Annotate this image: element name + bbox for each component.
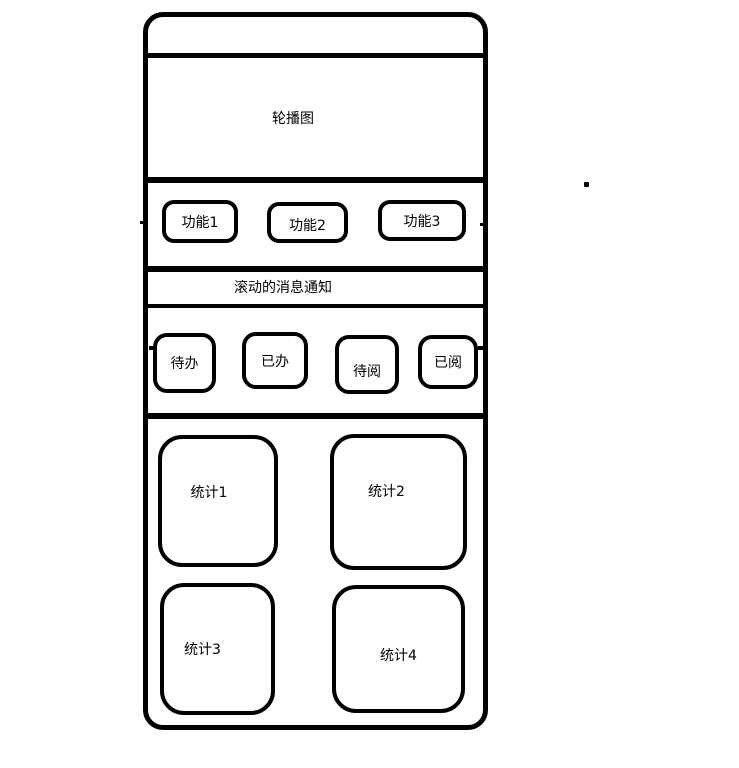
- edge-tick-left-tasks: [149, 346, 155, 350]
- function-button-2[interactable]: 功能2: [267, 202, 348, 243]
- task-button-done-label: 已办: [261, 351, 289, 371]
- function-button-1[interactable]: 功能1: [162, 200, 238, 243]
- stat-box-1[interactable]: 统计1: [158, 435, 278, 567]
- task-button-todo-label: 待办: [171, 353, 199, 373]
- scrolling-notice-label: 滚动的消息通知: [234, 277, 332, 297]
- tasks-bottom-line: [147, 413, 485, 419]
- stat-box-2-label: 统计2: [368, 481, 405, 501]
- stray-dot: [584, 182, 589, 187]
- carousel-placeholder[interactable]: 轮播图: [147, 58, 485, 177]
- function-button-3-label: 功能3: [404, 211, 441, 231]
- task-button-toread-label: 待阅: [353, 361, 381, 381]
- stat-box-4[interactable]: 统计4: [332, 585, 465, 713]
- task-button-read[interactable]: 已阅: [418, 335, 478, 389]
- stat-box-3-label: 统计3: [184, 639, 221, 659]
- wireframe-canvas: 轮播图 功能1 功能2 功能3 滚动的消息通知 待办 已办 待阅 已阅 统计1 …: [0, 0, 739, 768]
- task-button-toread[interactable]: 待阅: [335, 335, 399, 394]
- scrolling-notice-bar[interactable]: 滚动的消息通知: [147, 270, 485, 304]
- carousel-bottom-line: [147, 177, 485, 183]
- stat-box-1-label: 统计1: [191, 482, 228, 502]
- function-button-1-label: 功能1: [182, 212, 219, 232]
- function-button-2-label: 功能2: [289, 215, 326, 235]
- function-button-3[interactable]: 功能3: [378, 200, 466, 241]
- task-button-done[interactable]: 已办: [242, 332, 308, 389]
- edge-tick-right-tasks: [478, 346, 484, 350]
- stat-box-4-label: 统计4: [380, 645, 417, 665]
- task-button-todo[interactable]: 待办: [153, 333, 216, 393]
- stat-box-2[interactable]: 统计2: [330, 434, 467, 570]
- carousel-label: 轮播图: [272, 108, 314, 128]
- stat-box-3[interactable]: 统计3: [160, 583, 275, 715]
- edge-tick-left-functions: [140, 221, 147, 224]
- notice-bottom-line: [147, 304, 485, 308]
- task-button-read-label: 已阅: [434, 352, 462, 372]
- edge-tick-right-functions: [480, 223, 486, 226]
